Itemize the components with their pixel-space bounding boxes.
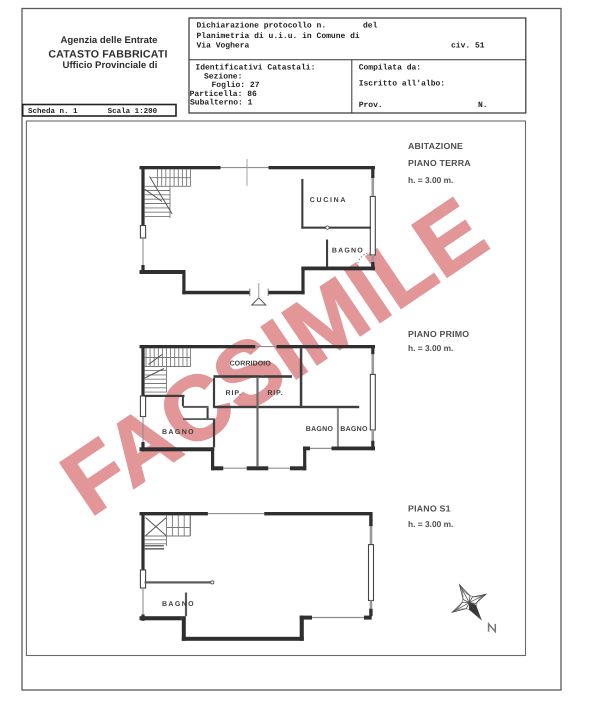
svg-text:RIP.: RIP. xyxy=(226,390,242,397)
svg-text:PIANO PRIMO: PIANO PRIMO xyxy=(408,329,469,339)
svg-text:Subalterno: 1: Subalterno: 1 xyxy=(190,99,253,108)
svg-text:RIP.: RIP. xyxy=(267,390,283,397)
svg-text:Compilata da:: Compilata da: xyxy=(359,63,421,72)
svg-text:Planimetria di u.i.u. in Comun: Planimetria di u.i.u. in Comune di xyxy=(197,32,360,41)
svg-text:Scala 1:200: Scala 1:200 xyxy=(108,107,158,116)
svg-text:BAGNO: BAGNO xyxy=(332,248,364,255)
svg-text:CATASTO FABBRICATI: CATASTO FABBRICATI xyxy=(48,49,167,61)
svg-text:PIANO TERRA: PIANO TERRA xyxy=(408,158,471,168)
svg-text:BAGNO: BAGNO xyxy=(340,426,368,433)
svg-text:Agenzia delle Entrate: Agenzia delle Entrate xyxy=(60,35,157,46)
svg-text:PIANO S1: PIANO S1 xyxy=(408,503,451,513)
svg-text:Prov.: Prov. xyxy=(359,101,383,110)
svg-text:Dichiarazione protocollo n.: Dichiarazione protocollo n. xyxy=(197,22,327,31)
svg-text:civ. 51: civ. 51 xyxy=(451,42,485,51)
svg-text:CUCINA: CUCINA xyxy=(310,197,347,204)
svg-text:ABITAZIONE: ABITAZIONE xyxy=(408,141,463,151)
svg-text:h. = 3.00 m.: h. = 3.00 m. xyxy=(408,175,453,185)
svg-text:CORRIDOIO: CORRIDOIO xyxy=(230,361,272,368)
svg-text:Via Voghera: Via Voghera xyxy=(197,42,250,51)
svg-text:Identificativi Catastali:: Identificativi Catastali: xyxy=(195,63,315,72)
svg-text:BAGNO: BAGNO xyxy=(162,601,195,608)
svg-text:Ufficio Provinciale di: Ufficio Provinciale di xyxy=(63,60,158,71)
svg-text:h. = 3.00 m.: h. = 3.00 m. xyxy=(408,343,453,353)
svg-text:BAGNO: BAGNO xyxy=(162,429,195,436)
svg-text:Scheda n. 1: Scheda n. 1 xyxy=(28,107,78,116)
svg-text:h. = 3.00 m.: h. = 3.00 m. xyxy=(408,519,453,529)
svg-text:BAGNO: BAGNO xyxy=(306,426,334,433)
svg-text:N.: N. xyxy=(478,101,488,110)
svg-text:Foglio: 27: Foglio: 27 xyxy=(212,81,260,90)
svg-text:Iscritto all'albo:: Iscritto all'albo: xyxy=(359,80,445,89)
svg-text:del: del xyxy=(363,22,378,31)
